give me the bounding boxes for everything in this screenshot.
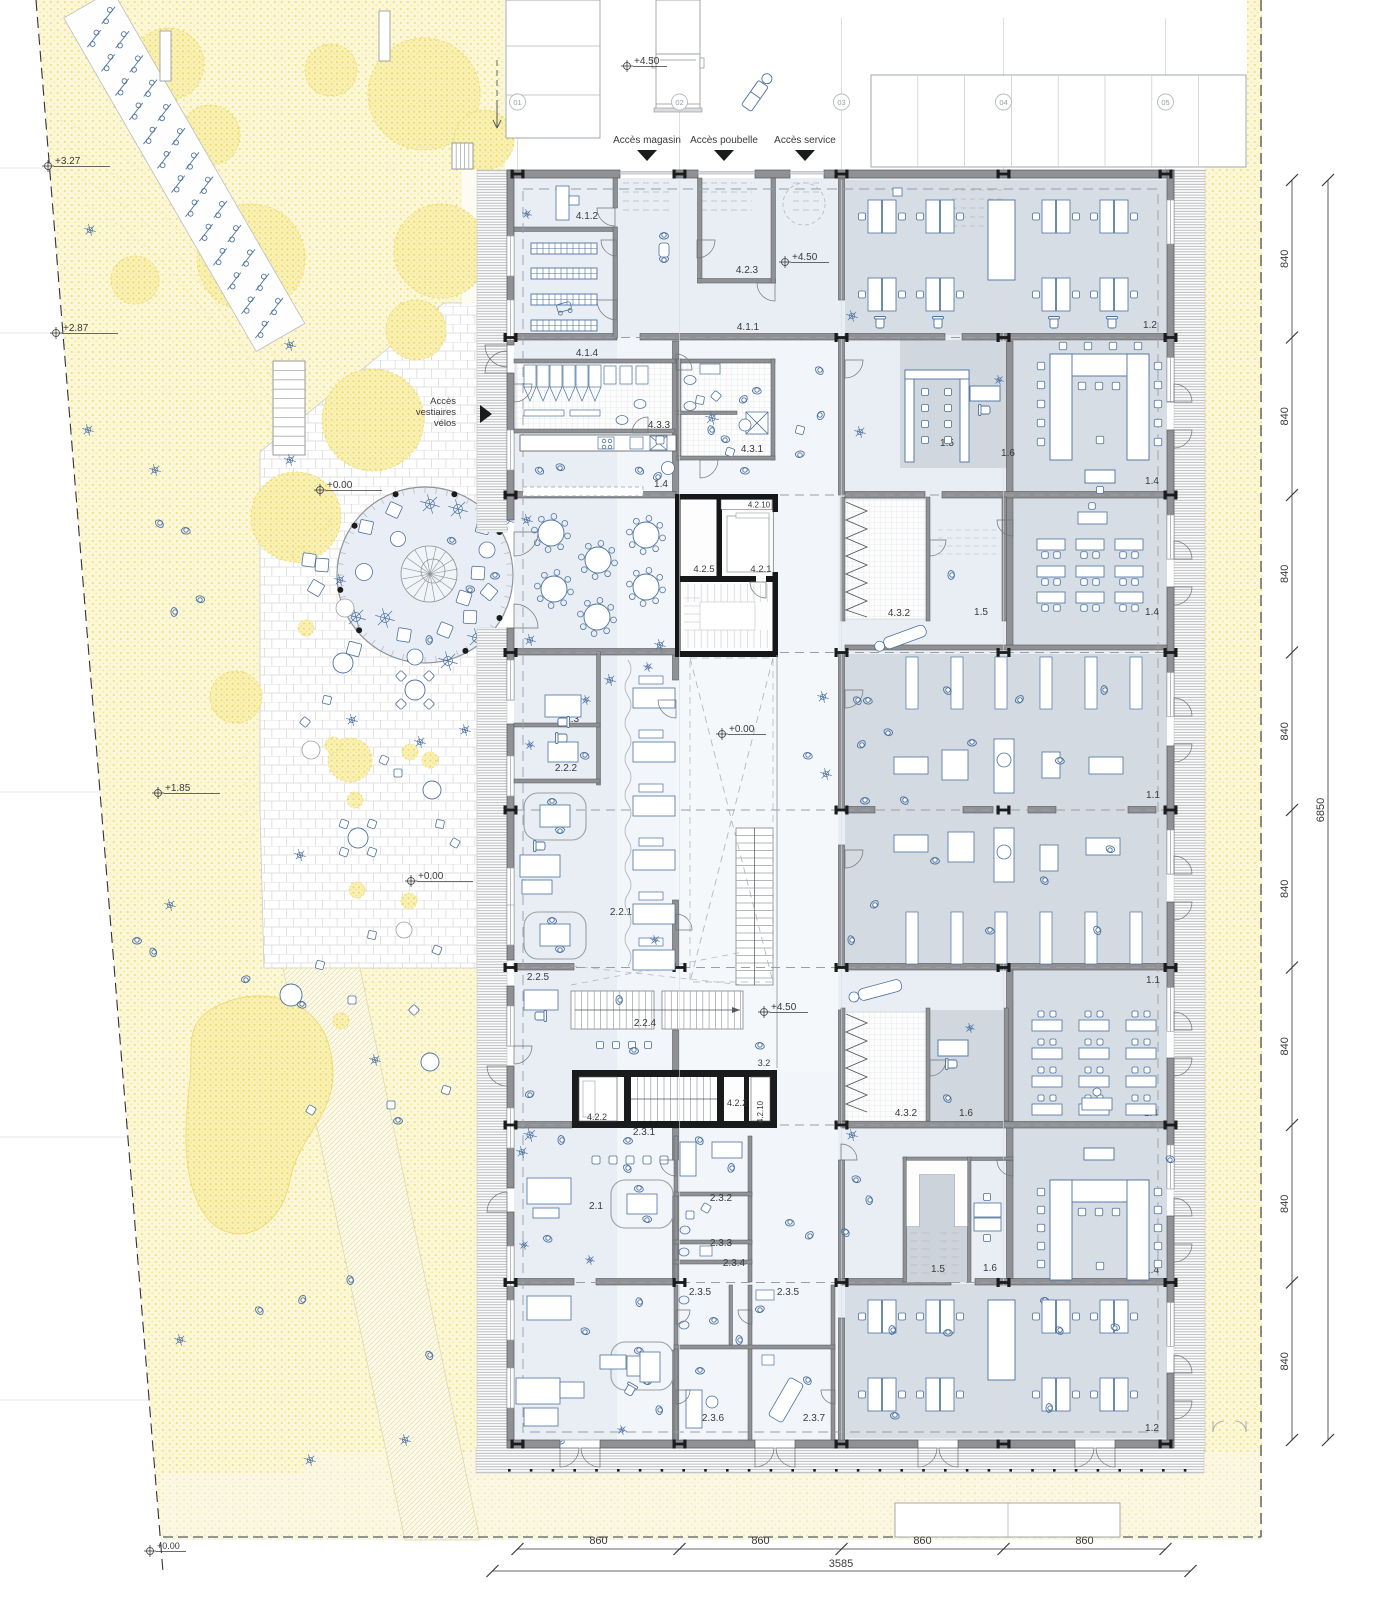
svg-text:1.6: 1.6 [1001,448,1015,459]
svg-text:4.2.2: 4.2.2 [727,1098,747,1108]
svg-text:1.5: 1.5 [974,607,988,618]
svg-text:1.1: 1.1 [1146,975,1160,986]
svg-text:2.3.6: 2.3.6 [702,1413,725,1424]
svg-text:1.4: 1.4 [1145,607,1159,618]
svg-text:+0.00: +0.00 [157,1541,180,1551]
svg-text:6850: 6850 [1315,798,1327,822]
svg-text:4.3.2: 4.3.2 [888,608,911,619]
svg-text:2.3.7: 2.3.7 [803,1413,826,1424]
svg-text:2.2.1: 2.2.1 [610,907,633,918]
svg-text:860: 860 [589,1535,607,1547]
svg-text:1.4: 1.4 [654,479,668,490]
svg-text:Accès poubelle: Accès poubelle [690,135,758,146]
svg-text:2.3.5: 2.3.5 [777,1287,800,1298]
svg-text:+0.00: +0.00 [729,724,755,735]
svg-text:4.2.3: 4.2.3 [736,265,759,276]
svg-text:vélos: vélos [434,418,456,429]
svg-text:+2.87: +2.87 [63,323,89,334]
svg-text:4.3.1: 4.3.1 [741,444,764,455]
svg-text:01: 01 [513,98,521,107]
svg-text:+0.00: +0.00 [327,480,353,491]
svg-text:4.2.10: 4.2.10 [748,501,771,510]
svg-text:1.2: 1.2 [1143,320,1157,331]
svg-text:+3.27: +3.27 [55,156,81,167]
svg-text:+4.50: +4.50 [634,56,660,67]
svg-text:+4.50: +4.50 [792,252,818,263]
svg-text:1.6: 1.6 [959,1108,973,1119]
svg-text:4.1.2: 4.1.2 [576,211,599,222]
svg-text:2.3.2: 2.3.2 [710,1193,733,1204]
svg-text:2.3.4: 2.3.4 [723,1258,746,1269]
svg-text:1.5: 1.5 [931,1264,945,1275]
svg-text:3585: 3585 [829,1558,853,1570]
svg-text:1.1: 1.1 [1146,790,1160,801]
svg-text:2.3.3: 2.3.3 [710,1238,733,1249]
svg-text:840: 840 [1279,1037,1291,1055]
svg-text:4.2.1: 4.2.1 [750,564,771,575]
svg-text:2.3.1: 2.3.1 [633,1127,656,1138]
svg-text:3.2: 3.2 [758,1058,771,1068]
svg-text:4.2.10: 4.2.10 [756,1100,765,1123]
svg-text:1.2: 1.2 [1145,1423,1159,1434]
svg-text:4.2.5: 4.2.5 [693,564,714,575]
svg-text:860: 860 [1075,1535,1093,1547]
svg-text:840: 840 [1279,407,1291,425]
svg-text:4.2.2: 4.2.2 [587,1112,607,1122]
svg-text:vestiaires: vestiaires [416,407,456,418]
svg-text:840: 840 [1279,722,1291,740]
svg-text:2.3.5: 2.3.5 [689,1287,712,1298]
svg-text:02: 02 [675,98,683,107]
svg-text:05: 05 [1161,98,1169,107]
svg-text:04: 04 [999,98,1007,107]
svg-text:4.3.3: 4.3.3 [648,420,671,431]
svg-text:840: 840 [1279,250,1291,268]
svg-text:+4.50: +4.50 [771,1002,797,1013]
svg-text:4.1.4: 4.1.4 [576,348,599,359]
svg-text:2.2.5: 2.2.5 [527,972,550,983]
svg-text:840: 840 [1279,1195,1291,1213]
svg-text:+0.00: +0.00 [418,871,444,882]
svg-text:860: 860 [751,1535,769,1547]
svg-text:2.2.2: 2.2.2 [555,763,578,774]
svg-text:840: 840 [1279,880,1291,898]
svg-text:+1.85: +1.85 [165,783,191,794]
svg-text:860: 860 [913,1535,931,1547]
svg-text:2.2.4: 2.2.4 [634,1018,657,1029]
svg-text:840: 840 [1279,1352,1291,1370]
svg-text:Accès magasin: Accès magasin [613,135,681,146]
svg-text:Accès service: Accès service [774,135,836,146]
svg-text:1.6: 1.6 [983,1263,997,1274]
svg-text:840: 840 [1279,565,1291,583]
svg-text:2.1: 2.1 [589,1201,603,1212]
svg-text:4.1.1: 4.1.1 [737,322,760,333]
svg-text:1.4: 1.4 [1145,476,1159,487]
svg-text:4.3.2: 4.3.2 [895,1108,918,1119]
svg-text:Accès: Accès [430,396,456,407]
svg-text:03: 03 [837,98,845,107]
